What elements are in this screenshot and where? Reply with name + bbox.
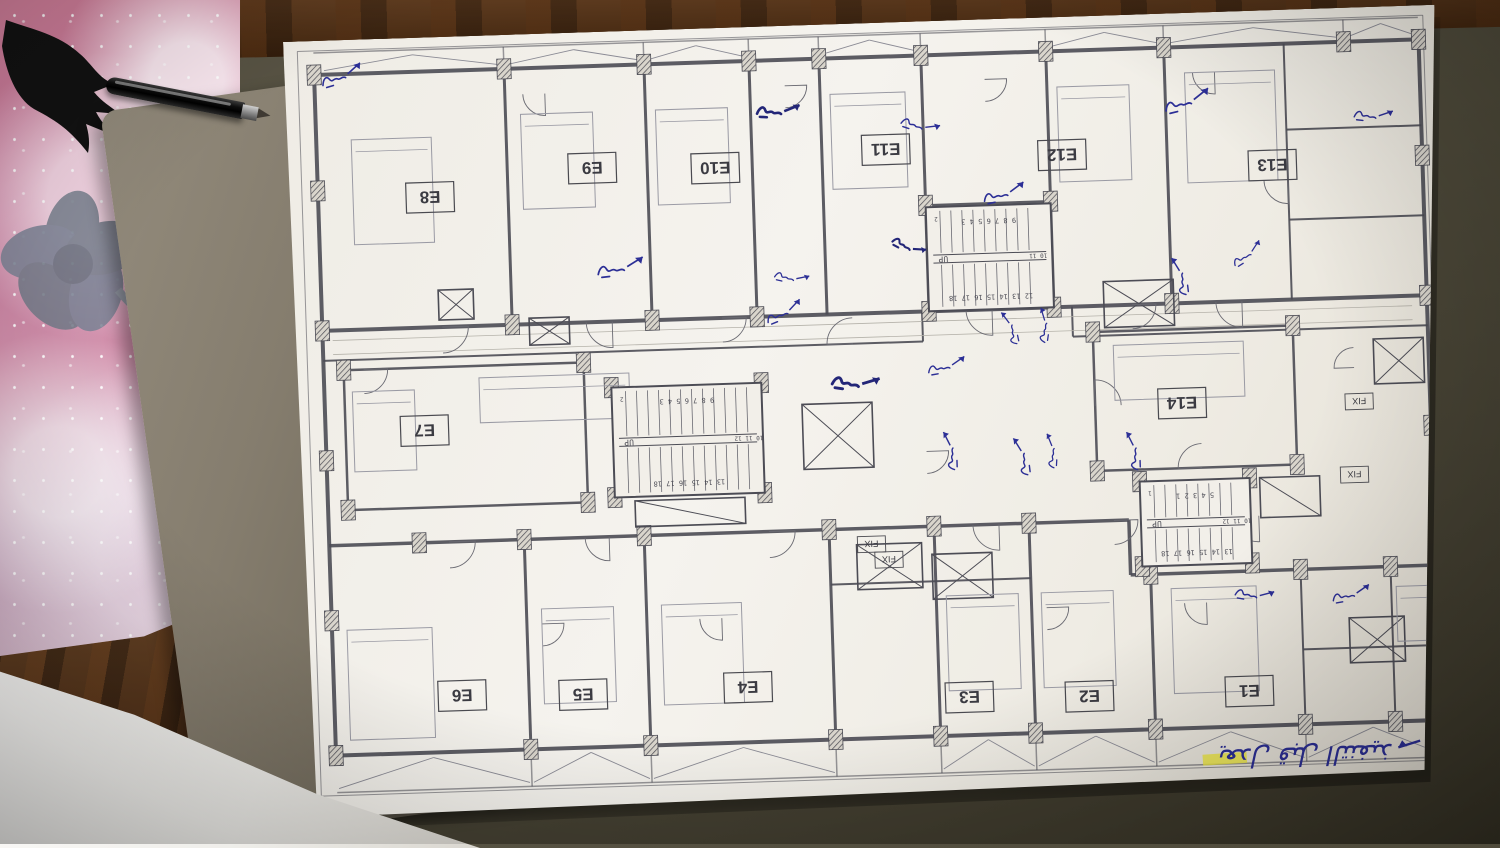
unit-label-text: E11: [871, 139, 901, 159]
window-swing-line: [1096, 734, 1155, 764]
wall-segment: [829, 530, 836, 740]
window-swing-line: [533, 752, 592, 782]
unit-label-E9: E9: [568, 152, 617, 184]
pen-annotation: [1001, 310, 1019, 345]
door-arc: [1185, 602, 1208, 625]
hatched-wall-block: [927, 516, 942, 536]
unit-label-text: E4: [737, 677, 759, 697]
wall-segment: [749, 61, 757, 317]
stair-number-text: 10 11 12: [734, 434, 763, 442]
stair-number-text: 2: [934, 215, 938, 222]
hatched-wall-block: [1411, 29, 1426, 49]
pen-annotation: [774, 268, 809, 287]
stair-number-text: 5 4 3 2 1: [1176, 491, 1214, 500]
pen-annotation: [1127, 432, 1141, 470]
window-swing-line: [653, 748, 744, 779]
hatched-wall-block: [742, 51, 757, 71]
pen-annotation: [891, 234, 926, 260]
hatched-wall-block: [1285, 315, 1300, 335]
door-arc: [973, 524, 1000, 551]
window-swing-line: [1165, 28, 1253, 44]
window-swing-line: [988, 738, 1034, 767]
hatched-wall-block: [412, 533, 427, 553]
wall-segment: [1293, 326, 1297, 465]
hatched-wall-block: [1038, 41, 1053, 61]
window-swing-line: [505, 50, 573, 65]
hatched-wall-block: [315, 321, 330, 341]
door-arc: [1216, 301, 1243, 328]
unit-label-E7: E7: [400, 415, 449, 447]
unit-label-E10: E10: [691, 152, 740, 184]
wall-segment: [1164, 48, 1172, 304]
wall-segment: [1301, 569, 1306, 724]
unit-label-text: E2: [1079, 686, 1100, 706]
hatched-wall-block: [307, 65, 322, 85]
unit-label-text: E7: [414, 420, 435, 440]
unit-label-text: E13: [1257, 155, 1288, 175]
wall-segment: [1391, 567, 1396, 722]
fix-label-text: FIX: [864, 539, 878, 549]
hatched-wall-block: [637, 525, 652, 545]
unit-label-E8: E8: [406, 182, 455, 214]
pen-annotation: [927, 356, 966, 375]
door-arc: [542, 623, 565, 646]
stair-number-text: UP: [1152, 519, 1162, 528]
hatched-wall-block: [1085, 322, 1100, 342]
hatched-wall-block: [505, 315, 520, 335]
hatched-wall-block: [811, 48, 826, 68]
door-arc: [927, 451, 950, 474]
hatched-wall-block: [1293, 559, 1308, 579]
corridor-line: [333, 306, 1412, 341]
unit-label-text: E1: [1239, 681, 1260, 701]
fix-label-text: FIX: [882, 554, 896, 564]
fix-label: FIX: [1345, 393, 1374, 410]
stair-core: 9 8 7 6 5 4 312 13 14 15 16 17 18UP10 11…: [926, 203, 1054, 311]
stair-number-text: 1: [1148, 489, 1152, 496]
unit-label-text: E6: [451, 685, 472, 705]
window-swing-line: [645, 46, 696, 61]
fix-label: FIX: [1340, 466, 1369, 483]
hatched-wall-block: [933, 726, 948, 746]
hatched-wall-block: [1298, 714, 1313, 734]
unit-label-E1: E1: [1225, 675, 1274, 707]
door-arc: [966, 309, 993, 336]
wall-segment: [314, 75, 336, 756]
window-swing-line: [744, 745, 835, 776]
shaft-box: [802, 402, 874, 469]
hatched-wall-block: [828, 729, 843, 749]
door-arc: [585, 537, 610, 562]
window-swing-line: [324, 55, 413, 71]
door-arc: [1047, 607, 1070, 630]
window-swing-line: [573, 47, 641, 62]
hatched-wall-block: [336, 360, 351, 380]
shaft-box: [1260, 476, 1321, 518]
unit-label-E11: E11: [861, 134, 910, 166]
window-swing-line: [591, 751, 650, 781]
unit-label-text: E9: [582, 158, 603, 178]
fix-label-text: FIX: [1347, 469, 1361, 479]
floorplan-sheet: 9 8 7 6 5 4 312 13 14 15 16 17 18UP10 11…: [283, 5, 1459, 818]
stair-core: 5 4 3 2 113 14 15 16 17 18UP10 11 121: [1140, 478, 1253, 567]
hatched-wall-block: [1383, 556, 1398, 576]
hatched-wall-block: [822, 519, 837, 539]
unit-label-E5: E5: [559, 679, 608, 711]
wall-segment: [344, 370, 349, 510]
hatched-wall-block: [1090, 461, 1105, 481]
hatched-wall-block: [645, 310, 660, 330]
window-swing-line: [338, 758, 434, 789]
wall-segment: [524, 539, 531, 749]
wall-segment: [1029, 523, 1036, 733]
window-swing-line: [434, 754, 530, 785]
wall-segment: [644, 536, 651, 746]
pen-annotation: [1230, 240, 1264, 267]
hatched-wall-block: [1415, 145, 1430, 165]
wall-segment: [819, 59, 827, 315]
hatched-wall-block: [581, 492, 596, 512]
floorplan-drawing: 9 8 7 6 5 4 312 13 14 15 16 17 18UP10 11…: [283, 5, 1459, 818]
unit-label-E14: E14: [1158, 387, 1207, 419]
hatched-wall-block: [1388, 711, 1403, 731]
unit-label-E6: E6: [438, 680, 487, 712]
hatched-wall-block: [1290, 454, 1305, 474]
hatched-wall-block: [311, 181, 326, 201]
shaft-box: [635, 497, 746, 527]
furniture-outline: [347, 627, 436, 740]
wall-segment: [584, 362, 589, 502]
door-arc: [1132, 304, 1157, 329]
furniture-outline: [661, 602, 744, 705]
door-arc: [1177, 444, 1202, 469]
door-arc: [586, 322, 613, 349]
wall-segment: [504, 69, 512, 325]
wall-segment: [1129, 520, 1131, 575]
wall-segment: [831, 578, 1031, 584]
pen-annotation: [1045, 434, 1058, 468]
shaft-box: [932, 552, 993, 599]
door-arc: [449, 541, 476, 568]
hatched-wall-block: [1336, 32, 1351, 52]
unit-label-text: E10: [700, 158, 731, 178]
hatched-wall-block: [1028, 723, 1043, 743]
hatched-wall-block: [644, 735, 659, 755]
window-swing-line: [869, 38, 918, 53]
pen-annotation: [982, 182, 1026, 204]
window-swing-line: [696, 44, 747, 59]
wall-segment: [1289, 215, 1424, 219]
shaft-box: [529, 317, 570, 345]
window-swing-line: [1104, 31, 1161, 46]
door-arc: [769, 531, 796, 558]
hatched-wall-block: [1022, 513, 1037, 533]
hatched-wall-block: [517, 529, 532, 549]
hatched-wall-block: [1433, 710, 1448, 730]
hatched-wall-block: [341, 500, 356, 520]
hatched-wall-block: [750, 307, 765, 327]
unit-label-text: E12: [1047, 144, 1078, 164]
pen-annotation: [597, 257, 645, 278]
fix-label-text: FIX: [1352, 396, 1366, 406]
door-arc: [985, 79, 1008, 102]
door-arc: [785, 85, 808, 108]
hatched-wall-block: [524, 739, 539, 759]
stair-number-text: 2: [619, 395, 623, 402]
door-arc: [826, 318, 853, 345]
shaft-box: [438, 289, 474, 320]
shaft-box: [1373, 337, 1424, 384]
furniture-outline: [1113, 341, 1245, 400]
hatched-wall-block: [329, 745, 344, 765]
unit-label-text: E14: [1166, 393, 1197, 413]
pen-annotation: [1235, 585, 1274, 604]
furniture-outline: [655, 108, 730, 205]
hatched-wall-block: [913, 45, 928, 65]
door-arc: [442, 326, 469, 353]
pen-annotation: [832, 372, 880, 394]
hatched-wall-block: [1156, 37, 1171, 57]
door-arc: [1114, 520, 1139, 545]
hatched-wall-block: [497, 59, 512, 79]
door-arc: [1094, 379, 1121, 406]
stair-number-text: UP: [624, 438, 634, 447]
pen-annotation: [1163, 88, 1212, 114]
unit-label-E12: E12: [1038, 139, 1087, 171]
pen-annotation: [757, 103, 800, 119]
furniture-outline: [1171, 586, 1259, 694]
hatched-wall-block: [324, 611, 339, 631]
window-swing-line: [943, 740, 989, 769]
wall-segment: [1286, 125, 1421, 129]
unit-label-E13: E13: [1248, 149, 1297, 181]
wall-segment: [1151, 574, 1156, 729]
pen-annotation: [1332, 585, 1371, 604]
door-arc: [523, 94, 546, 117]
furniture-outline: [1041, 590, 1116, 687]
window-swing-line: [412, 52, 501, 68]
stair-number-text: UP: [938, 254, 948, 263]
wall-segment: [314, 39, 1418, 75]
pen-tip: [257, 108, 272, 120]
wall-segment: [348, 502, 588, 510]
window-swing-line: [1253, 25, 1341, 41]
door-arc: [364, 369, 389, 394]
furniture-outline: [946, 594, 1021, 691]
door-arc: [722, 317, 747, 342]
window-swing-line: [1047, 32, 1104, 47]
handwritten-note: يعدل قبل التنفيذ: [1219, 737, 1394, 773]
hatched-wall-block: [1165, 293, 1180, 313]
stair-number-text: 10 11: [1029, 251, 1048, 259]
window-swing-line: [820, 40, 869, 55]
furniture-outline: [352, 390, 417, 472]
pen-annotation: [1354, 107, 1393, 124]
unit-label-text: E5: [573, 684, 594, 704]
window-swing-line: [1038, 736, 1097, 766]
wall-segment: [1072, 307, 1073, 337]
wall-segment: [644, 64, 652, 320]
unit-label-E4: E4: [724, 672, 773, 704]
pen-annotation: [764, 299, 804, 325]
stair-core: 9 8 7 6 5 4 313 14 15 16 17 18UP10 11 12…: [611, 383, 765, 498]
unit-label-E3: E3: [945, 681, 994, 713]
hatched-wall-block: [576, 352, 591, 372]
hatched-wall-block: [319, 451, 334, 471]
unit-label-text: E3: [959, 687, 980, 707]
furniture-outline: [1057, 85, 1132, 182]
stair-number-text: 10 11 12: [1222, 516, 1251, 524]
hatched-wall-block: [637, 54, 652, 74]
door-arc: [700, 618, 723, 641]
hatched-wall-block: [1148, 719, 1163, 739]
door-arc: [1333, 348, 1354, 369]
pen-annotation: [1013, 437, 1030, 476]
door-arc: [1264, 180, 1289, 205]
unit-label-text: E8: [419, 187, 440, 207]
